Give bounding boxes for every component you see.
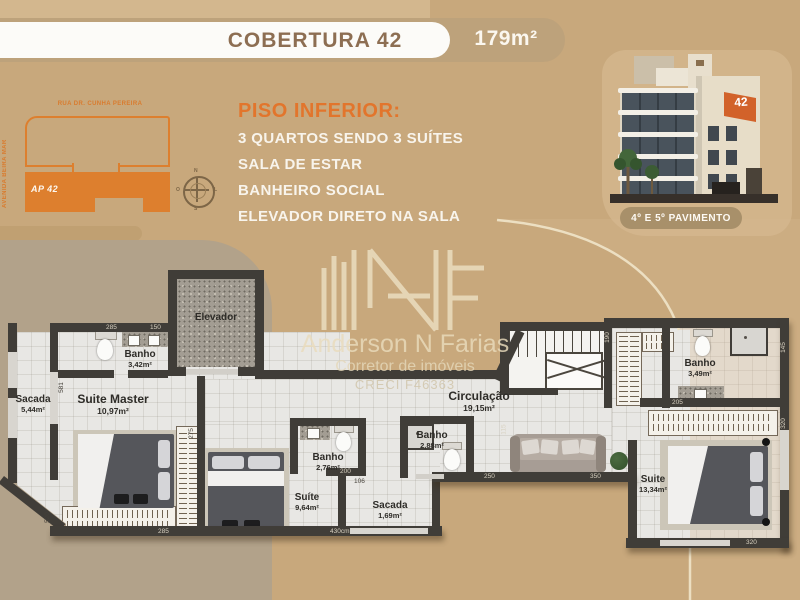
wall	[640, 398, 780, 407]
dimension: 320	[780, 418, 787, 429]
room-label-circulacao: Circulação 19,15m²	[438, 390, 520, 414]
stairs-wall	[500, 328, 509, 394]
pillow	[248, 456, 280, 469]
elevator-wall	[168, 270, 177, 376]
elevator-door-sill	[186, 369, 238, 374]
pillow	[158, 440, 170, 468]
dimension: 285	[106, 324, 117, 331]
dimension: 581	[58, 382, 65, 393]
pillow	[750, 486, 763, 516]
dimension: 106	[354, 478, 365, 485]
sofa-pillow	[540, 439, 558, 455]
dimension: 275	[188, 428, 195, 439]
cushion	[133, 494, 148, 504]
shower	[730, 326, 768, 356]
wall	[58, 370, 114, 378]
toilet	[336, 432, 351, 451]
dimension: 190	[604, 332, 611, 343]
wall	[197, 376, 205, 528]
room-label-banho-3: Banho 2,88m²	[406, 430, 458, 450]
room-label-banho-4: Banho 3,49m²	[672, 358, 728, 378]
window	[780, 430, 789, 490]
dimension: 150	[150, 324, 161, 331]
pillow	[158, 472, 170, 500]
toilet	[695, 336, 710, 356]
dimension: 320	[746, 539, 757, 546]
dimension: 250	[484, 473, 495, 480]
room-label-suite-3: Suite 13,34m²	[628, 474, 678, 494]
dimension: 145	[780, 342, 787, 353]
stairs-wall	[500, 322, 612, 331]
wall	[400, 416, 474, 424]
bg-patch	[600, 482, 628, 540]
lamp	[762, 438, 770, 446]
dimension: 200	[340, 468, 351, 475]
sink	[128, 335, 140, 346]
wall	[432, 476, 440, 528]
room-label-sacada-2: Sacada 1,69m²	[362, 500, 418, 520]
closet	[648, 410, 778, 436]
bed-sheet	[208, 471, 284, 486]
dimension: 115	[501, 424, 508, 434]
stairs-inner-box	[545, 352, 603, 390]
dimension: 350	[590, 473, 601, 480]
elevator-wall	[255, 270, 264, 376]
dimension: 520	[44, 512, 51, 523]
shower-drain	[744, 336, 747, 339]
window-railing	[350, 528, 428, 534]
room-label-suite-master: Suite Master 10,97m²	[70, 393, 156, 417]
sofa-pillow	[579, 439, 596, 455]
lamp	[762, 518, 770, 526]
plant	[610, 452, 628, 470]
building-unit-badge: 42	[726, 94, 757, 110]
sofa-armrest	[596, 436, 606, 472]
sofa-pillow	[561, 439, 579, 454]
room-label-banho-1: Banho 3,42m²	[112, 349, 168, 369]
elevator-wall	[168, 367, 186, 376]
wall	[662, 328, 670, 408]
wall	[128, 370, 168, 378]
cushion	[114, 494, 129, 504]
wall	[358, 418, 366, 474]
closet	[616, 332, 642, 406]
door-sill	[416, 474, 444, 479]
elevator-wall	[168, 270, 264, 279]
flyer-page: COBERTURA 42 179m² RUA DR. CUNHA PEREIRA…	[0, 0, 800, 600]
wall	[466, 416, 474, 478]
pillow	[750, 452, 763, 482]
room-label-suite-2: Suíte 9,64m²	[282, 492, 332, 512]
wall	[338, 476, 346, 528]
sofa-pillow	[521, 439, 540, 455]
window	[660, 540, 730, 546]
wall-bottom-center	[432, 472, 634, 482]
toilet	[444, 449, 460, 470]
building-render	[604, 52, 784, 204]
dimension: 285	[158, 528, 169, 535]
dimension: 430cm	[330, 528, 350, 535]
building-caption: 4º E 5º PAVIMENTO	[620, 207, 742, 229]
wall-top-middle	[255, 370, 500, 379]
sink	[307, 428, 320, 439]
room-label-sacada-1: Sacada 5,44m²	[6, 394, 60, 414]
wall	[290, 418, 298, 474]
pillow	[212, 456, 244, 469]
window	[8, 352, 17, 388]
room-label-elevador: Elevador	[186, 312, 246, 324]
wall-top-right	[604, 318, 789, 328]
sink	[148, 335, 160, 346]
dimension: 205	[672, 399, 683, 406]
toilet	[97, 339, 113, 360]
wall	[290, 418, 366, 426]
sofa-armrest	[510, 436, 520, 472]
